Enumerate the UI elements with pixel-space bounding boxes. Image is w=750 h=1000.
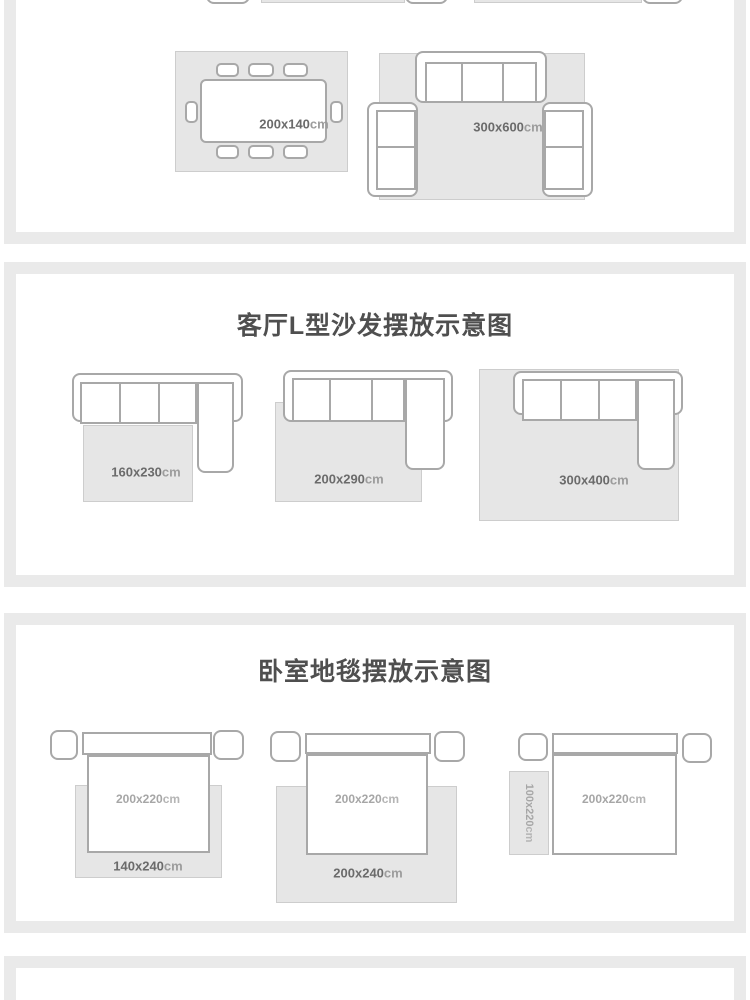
- loveseat-left-seats: [376, 110, 416, 190]
- runner-rug-dimension-label: 100x220cm: [523, 784, 535, 843]
- dimension-value: 200x220: [116, 792, 163, 806]
- dimension-value: 200x220: [335, 792, 382, 806]
- l-sofa-rug: [83, 425, 193, 502]
- dining-chair: [216, 145, 239, 159]
- loveseat-right-seats: [544, 110, 584, 190]
- cutoff-armrest: [206, 0, 250, 4]
- l-sofa-seats: [522, 379, 637, 421]
- sofa-seats: [425, 62, 537, 103]
- nightstand: [270, 731, 301, 762]
- section-next-partial: [4, 956, 746, 1000]
- dining-chair: [283, 63, 308, 77]
- seat-divider: [119, 384, 121, 422]
- dimension-unit: cm: [164, 859, 183, 874]
- dimension-unit: cm: [382, 792, 399, 806]
- headboard: [305, 733, 431, 754]
- headboard: [552, 733, 678, 754]
- seat-divider: [560, 381, 562, 419]
- dimension-unit: cm: [365, 472, 384, 487]
- cutoff-rug-edge: [474, 0, 642, 3]
- dimension-unit: cm: [523, 826, 535, 842]
- dining-chair: [216, 63, 239, 77]
- l-sofa-chaise: [637, 379, 675, 470]
- l-sofa-seats: [292, 378, 405, 422]
- nightstand: [50, 730, 78, 760]
- dimension-value: 200x220: [582, 792, 629, 806]
- l-sofa-section-title: 客厅L型沙发摆放示意图: [0, 306, 750, 342]
- living-rug-dimension-label: 300x600cm: [473, 120, 542, 135]
- seat-divider: [378, 146, 414, 148]
- bed-dimension-label: 200x220cm: [335, 792, 399, 806]
- dimension-value: 160x230: [111, 465, 162, 480]
- dimension-value: 100x220: [523, 784, 535, 827]
- l-sofa-seats: [80, 382, 197, 424]
- rug-placement-infographic: 200x140cm 300x600cm 客厅L型沙发摆放示意图 160x230c…: [0, 0, 750, 1000]
- dining-chair: [283, 145, 308, 159]
- bed-dimension-label: 200x220cm: [582, 792, 646, 806]
- rug-dimension-label: 300x400cm: [559, 473, 628, 488]
- dimension-value: 300x600: [473, 120, 524, 135]
- dimension-value: 300x400: [559, 473, 610, 488]
- rug-dimension-label: 140x240cm: [113, 859, 182, 874]
- dimension-unit: cm: [610, 473, 629, 488]
- dimension-unit: cm: [310, 117, 329, 132]
- dimension-value: 140x240: [113, 859, 164, 874]
- dimension-value: 200x240: [333, 866, 384, 881]
- dimension-unit: cm: [629, 792, 646, 806]
- bedroom-section-title: 卧室地毯摆放示意图: [0, 652, 750, 688]
- seat-divider: [546, 146, 582, 148]
- seat-divider: [329, 380, 331, 420]
- cutoff-armrest: [642, 0, 683, 4]
- dining-rug-dimension-label: 200x140cm: [259, 117, 328, 132]
- dining-chair-side: [185, 101, 198, 123]
- dining-chair-side: [330, 101, 343, 123]
- rug-dimension-label: 160x230cm: [111, 465, 180, 480]
- seat-divider: [158, 384, 160, 422]
- cutoff-armrest: [405, 0, 448, 4]
- dimension-value: 200x140: [259, 117, 310, 132]
- dimension-value: 200x290: [314, 472, 365, 487]
- nightstand: [213, 730, 244, 760]
- rug-dimension-label: 200x240cm: [333, 866, 402, 881]
- seat-divider: [371, 380, 373, 420]
- bed-dimension-label: 200x220cm: [116, 792, 180, 806]
- dimension-unit: cm: [162, 465, 181, 480]
- dimension-unit: cm: [384, 866, 403, 881]
- dimension-unit: cm: [524, 120, 543, 135]
- l-sofa-chaise: [405, 378, 445, 470]
- rug-dimension-label: 200x290cm: [314, 472, 383, 487]
- seat-divider: [461, 64, 463, 101]
- headboard: [82, 732, 212, 755]
- nightstand: [434, 731, 465, 762]
- dimension-unit: cm: [163, 792, 180, 806]
- dining-chair: [248, 145, 274, 159]
- dining-chair: [248, 63, 274, 77]
- seat-divider: [502, 64, 504, 101]
- l-sofa-chaise: [197, 382, 234, 473]
- seat-divider: [598, 381, 600, 419]
- nightstand: [518, 733, 548, 761]
- cutoff-rug-edge: [261, 0, 405, 3]
- dining-table: [200, 79, 327, 143]
- nightstand: [682, 733, 712, 763]
